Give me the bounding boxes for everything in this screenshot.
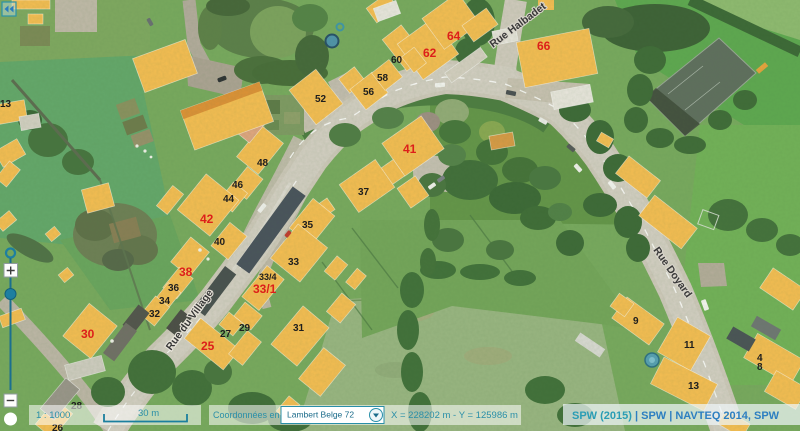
svg-text:60: 60	[391, 55, 403, 66]
svg-text:31: 31	[293, 323, 305, 334]
svg-text:29: 29	[239, 323, 251, 334]
svg-text:13: 13	[688, 381, 700, 392]
svg-text:66: 66	[537, 39, 551, 53]
svg-text:44: 44	[223, 194, 235, 205]
svg-text:52: 52	[315, 94, 327, 105]
svg-text:41: 41	[403, 142, 417, 156]
svg-text:8: 8	[757, 362, 763, 373]
svg-text:X = 228202 m - Y = 125986: X = 228202 m - Y = 125986 m	[391, 410, 518, 421]
svg-text:30 m: 30 m	[138, 408, 159, 419]
svg-text:33/4: 33/4	[259, 272, 277, 282]
svg-text:58: 58	[377, 73, 389, 84]
svg-text:37: 37	[358, 187, 370, 198]
svg-text:27: 27	[220, 329, 232, 340]
svg-text:64: 64	[447, 29, 461, 43]
svg-text:48: 48	[257, 158, 269, 169]
svg-text:Lambert Belge 72: Lambert Belge 72	[287, 410, 354, 420]
svg-text:46: 46	[232, 180, 244, 191]
svg-text:11: 11	[684, 340, 695, 351]
svg-text:32: 32	[149, 309, 161, 320]
svg-text:Coordonnées en: Coordonnées en	[213, 410, 280, 420]
svg-text:SPW (2015) | SPW | NAVTEQ 2014: SPW (2015) | SPW | NAVTEQ 2014, SPW	[572, 410, 780, 422]
svg-text:34: 34	[159, 296, 171, 307]
svg-text:36: 36	[168, 283, 180, 294]
svg-text:56: 56	[363, 87, 375, 98]
svg-text:33: 33	[288, 257, 300, 268]
svg-text:38: 38	[179, 265, 193, 279]
svg-text:25: 25	[201, 339, 215, 353]
svg-text:30: 30	[81, 327, 95, 341]
svg-text:1 : 1000: 1 : 1000	[36, 410, 70, 421]
svg-text:33/1: 33/1	[253, 282, 277, 296]
svg-text:40: 40	[214, 237, 226, 248]
svg-text:9: 9	[633, 316, 639, 327]
svg-text:62: 62	[423, 46, 437, 60]
svg-text:42: 42	[200, 212, 214, 226]
svg-text:13: 13	[0, 99, 12, 110]
svg-text:35: 35	[302, 220, 314, 231]
